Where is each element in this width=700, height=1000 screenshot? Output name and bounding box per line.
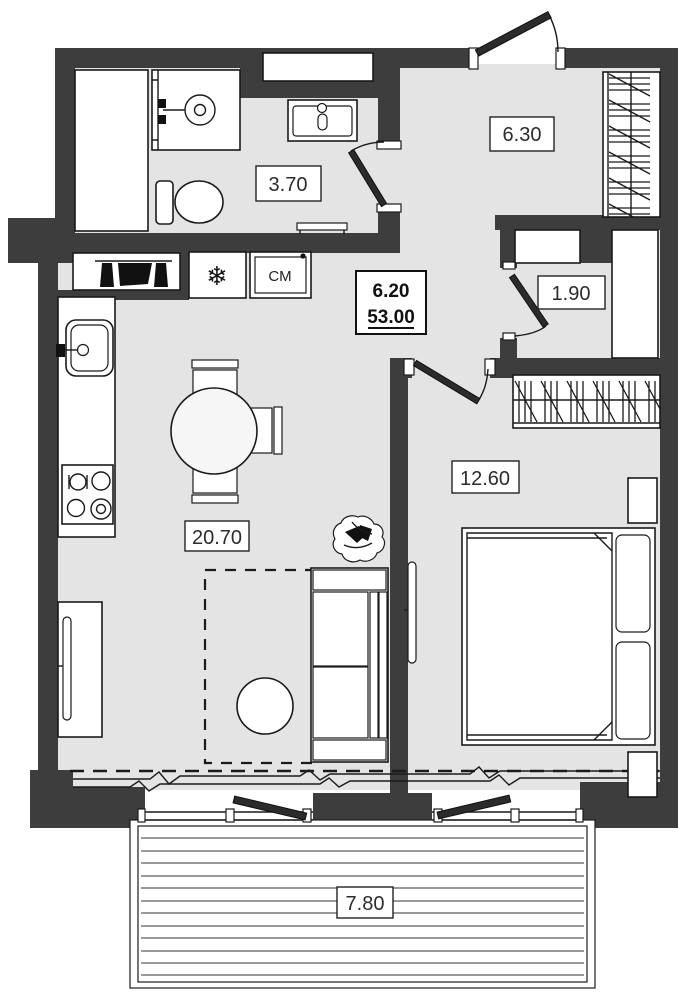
room-label-bedroom: 12.60 — [452, 461, 519, 493]
toilet — [156, 181, 223, 224]
window-jamb — [576, 809, 583, 822]
room-label-balcony: 7.80 — [337, 887, 393, 918]
svg-text:6.30: 6.30 — [503, 124, 542, 146]
total-area-label: 6.20 53.00 — [356, 271, 426, 334]
room-label-closet: 1.90 — [538, 276, 605, 309]
shower-valve — [158, 115, 166, 124]
door-jamb — [485, 359, 495, 375]
dining-table — [171, 388, 257, 474]
tv — [63, 617, 71, 720]
svg-text:20.70: 20.70 — [192, 527, 242, 549]
coffee-table — [237, 678, 293, 734]
kitchen-faucet-valve — [56, 344, 65, 357]
stove — [62, 465, 113, 524]
bathroom-sink — [288, 100, 357, 141]
washer-label: СМ — [268, 268, 291, 285]
sofa — [311, 568, 388, 762]
entry-niche — [263, 53, 373, 81]
floorplan-page: ❄ СМ — [0, 0, 700, 1000]
hanger-niche — [73, 253, 180, 290]
shower-valve — [158, 99, 166, 108]
coat-hanger — [118, 263, 152, 286]
door-jamb — [503, 333, 515, 340]
bed — [462, 528, 655, 745]
window-jamb — [511, 809, 519, 822]
tv-stand — [58, 602, 102, 737]
shower-cabin — [152, 70, 240, 150]
washing-machine: СМ — [250, 252, 311, 298]
coat-hanger — [154, 263, 168, 287]
room-label-hallway: 6.30 — [490, 117, 554, 151]
nightstand-bottom — [628, 752, 657, 797]
svg-text:3.70: 3.70 — [269, 174, 308, 196]
door-jamb — [503, 262, 515, 269]
room-label-bathroom: 3.70 — [256, 166, 321, 201]
svg-text:1.90: 1.90 — [552, 283, 591, 305]
pillow — [616, 642, 650, 739]
room-label-living: 20.70 — [185, 521, 249, 551]
floor-area-value: 6.20 — [373, 281, 410, 302]
window-jamb — [138, 809, 145, 822]
svg-text:7.80: 7.80 — [346, 893, 385, 915]
fridge: ❄ — [189, 252, 246, 298]
total-area-value: 53.00 — [367, 307, 415, 328]
coat-hanger — [100, 263, 114, 287]
entry-door — [469, 12, 565, 69]
door-jamb — [404, 359, 414, 375]
floorplan-drawing: ❄ СМ — [0, 0, 700, 1000]
hallway-wardrobe — [603, 72, 660, 217]
bathroom-shaft — [75, 70, 148, 231]
svg-text:12.60: 12.60 — [460, 468, 510, 490]
balcony-door-right — [437, 795, 511, 819]
pillow — [616, 535, 650, 632]
washer-hinge-dot — [300, 253, 305, 258]
balcony-door-left — [233, 796, 307, 820]
fridge-snowflake-icon: ❄ — [206, 262, 228, 292]
window-jamb — [226, 809, 234, 822]
nightstand-top — [628, 478, 657, 523]
closet-shaft — [612, 230, 658, 358]
bedroom-wardrobe — [513, 375, 660, 428]
closet-niche — [515, 230, 580, 263]
